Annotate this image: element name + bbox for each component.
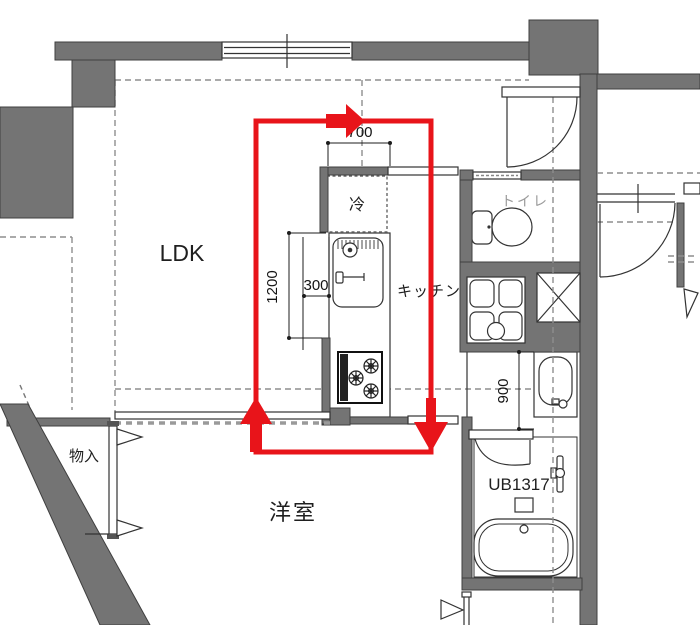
- dimension-700: 700: [326, 124, 392, 166]
- bathtub: [474, 498, 573, 576]
- label-storage: 物入: [69, 448, 99, 465]
- label-refrigerator: 冷: [349, 196, 365, 214]
- faucet-icon: [559, 400, 567, 408]
- tub-filler: [515, 498, 533, 512]
- label-unit-bath: UB1317: [488, 475, 549, 494]
- washing-machine-pan: [467, 277, 525, 343]
- arrow-up-icon: [240, 397, 272, 452]
- pipe-shaft: [537, 273, 580, 322]
- drain-icon: [488, 323, 505, 340]
- open-door-leaf: [677, 203, 684, 287]
- toilet-sliding-door: [473, 172, 521, 179]
- dimension-900: 900: [495, 350, 534, 431]
- washroom-door: [469, 430, 533, 465]
- door-swing-icon: [441, 600, 463, 619]
- arrow-down-icon: [414, 398, 448, 452]
- washbasin: [534, 352, 577, 417]
- svg-text:300: 300: [303, 277, 328, 294]
- folding-door-icon: [117, 429, 142, 445]
- sliding-door: [115, 412, 330, 419]
- kitchen-sink: [333, 238, 383, 307]
- svg-text:1200: 1200: [264, 270, 281, 303]
- dimension-300: 300: [302, 237, 331, 350]
- svg-text:900: 900: [495, 378, 512, 403]
- label-toilet: トイレ: [501, 193, 549, 209]
- floor-plan: 700 1200 300 900 LDK 冷 キッチン トイレ 物入 洋室 UB…: [0, 0, 700, 625]
- label-ldk: LDK: [160, 240, 205, 266]
- window-top: [222, 34, 352, 68]
- folding-door-icon: [117, 520, 142, 536]
- gas-stove: [338, 352, 382, 403]
- floor-plan-svg: 700 1200 300 900 LDK 冷 キッチン トイレ 物入 洋室 UB…: [0, 0, 700, 625]
- storage-doors: [85, 421, 142, 539]
- bottom-right-doorway: [441, 592, 471, 625]
- door-swing-icon: [684, 289, 698, 317]
- corridor-door: [597, 183, 700, 317]
- label-western-room: 洋室: [269, 500, 317, 525]
- center-dashed-lines: [115, 97, 700, 625]
- entry-door: [502, 87, 580, 167]
